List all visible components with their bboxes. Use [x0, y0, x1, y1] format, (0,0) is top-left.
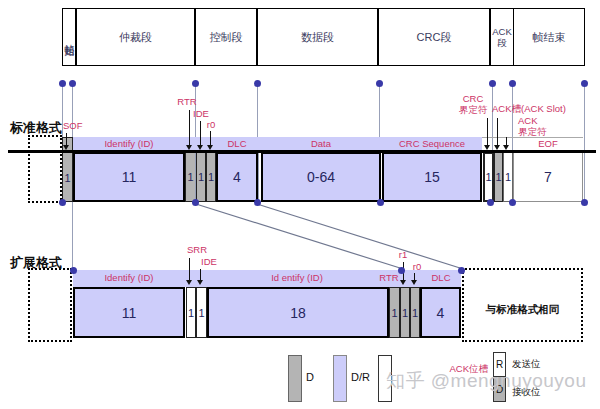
- extended-r0-bit-box: 1: [410, 287, 420, 338]
- watermark: 知乎 @mengnuyouyou: [386, 368, 587, 394]
- legend-dominant-recessive-swatch: [333, 355, 347, 402]
- standard-id-box: 11: [73, 152, 185, 202]
- segment-ack: ACK段: [490, 8, 514, 66]
- extended-rtr-bit-box: 1: [389, 287, 400, 338]
- standard-dlc-header: DLC: [217, 139, 257, 150]
- segment-data: 数据段: [257, 8, 378, 66]
- extended-id2-header: Id entify (ID): [247, 273, 347, 284]
- ack-delimiter-label-line1: ACK: [518, 115, 538, 126]
- connector-dot: [70, 267, 77, 274]
- ack-slot-box: 1: [494, 152, 503, 202]
- ack-slot-label: ACK槽(ACK Slot): [492, 104, 566, 115]
- legend-dominant-recessive-label: D/R: [351, 371, 370, 383]
- ack-delimiter-arrow: [503, 137, 510, 150]
- connector-dot: [581, 199, 588, 206]
- srr-bit-box: 1: [186, 287, 196, 338]
- crc-delimiter-label: CRC界定符: [448, 94, 498, 115]
- eof-box: 7: [513, 152, 583, 202]
- sof-arrow: [63, 133, 70, 150]
- r1-bit-box: 1: [400, 287, 410, 338]
- connector-line: [258, 152, 259, 202]
- extended-dlc-box: 4: [420, 287, 461, 338]
- ack-slot-arrow: [494, 118, 501, 150]
- segment-frame-end: 帧结束: [513, 8, 585, 66]
- extended-leading-dashed-box: [28, 268, 72, 342]
- legend-dominant-label: D: [306, 371, 314, 383]
- segment-crc: CRC段: [378, 8, 490, 66]
- extended-id2-box: 18: [207, 287, 389, 338]
- can-frame-diagram: 帧起始 仲裁段 控制段 数据段 CRC段 ACK段 帧结束 标准格式 Ident…: [0, 0, 600, 409]
- extended-ide-arrow: [197, 269, 204, 285]
- srr-label: SRR: [179, 245, 215, 256]
- connector-dot: [59, 199, 66, 206]
- standard-data-box: 0-64: [261, 152, 381, 202]
- connector-dot: [509, 199, 516, 206]
- segment-arbitration: 仲裁段: [76, 8, 195, 66]
- connector-dot: [192, 199, 199, 206]
- connector-dot: [377, 199, 384, 206]
- connector-dot: [254, 80, 261, 87]
- standard-leading-dashed-box: [28, 135, 62, 203]
- extended-ide-bit-box: 1: [196, 287, 207, 338]
- r0-bit-box: 1: [206, 152, 216, 202]
- r1-label: r1: [385, 250, 421, 261]
- crc-delimiter-box: 1: [483, 152, 494, 202]
- crc-delimiter-arrow: [484, 118, 491, 150]
- extended-r0-arrow: [411, 273, 418, 285]
- extended-ide-label: IDE: [191, 257, 227, 268]
- extended-id-box: 11: [73, 287, 185, 338]
- sof-label: SOF: [63, 121, 83, 132]
- crc-delimiter-label-line2: 界定符: [459, 104, 488, 115]
- connector-dot: [489, 80, 496, 87]
- ack-delimiter-label-line2: 界定符: [518, 126, 547, 137]
- ack-delimiter-label: ACK界定符: [518, 116, 547, 137]
- segment-frame-start: 帧起始: [62, 8, 76, 66]
- connector-dot: [458, 267, 465, 274]
- standard-crc-box: 15: [382, 152, 482, 202]
- extended-format-label: 扩展格式: [10, 254, 62, 272]
- bus-baseline: [8, 150, 596, 153]
- ide-arrow: [197, 121, 204, 150]
- connector-dot: [376, 80, 383, 87]
- standard-dlc-box: 4: [216, 152, 258, 202]
- connector-dot: [398, 267, 405, 274]
- srr-arrow: [186, 258, 193, 285]
- connector-dot: [254, 199, 261, 206]
- connector-line: [584, 86, 585, 202]
- standard-crc-header: CRC Sequence: [382, 139, 482, 150]
- ide-bit-box: 1: [196, 152, 206, 202]
- connector-line: [195, 152, 196, 202]
- same-as-standard-text: 与标准格式相同: [486, 303, 560, 317]
- extended-id-header: Identify (ID): [79, 273, 179, 284]
- r0-arrow: [207, 131, 214, 150]
- standard-id-header: Identify (ID): [79, 139, 179, 150]
- ack-delimiter-box: 1: [503, 152, 513, 202]
- segment-frame-start-label: 帧起始: [63, 36, 75, 39]
- standard-eof-header: EOF: [513, 139, 583, 150]
- connector-dot: [509, 80, 516, 87]
- standard-data-header: Data: [271, 139, 371, 150]
- crc-delimiter-label-line1: CRC: [463, 93, 484, 104]
- connector-dot: [59, 80, 66, 87]
- same-as-standard-box: 与标准格式相同: [462, 268, 583, 342]
- connector-dot: [487, 199, 494, 206]
- connector-dot: [581, 80, 588, 87]
- extended-dlc-header: DLC: [421, 273, 461, 284]
- connector-dot: [192, 80, 199, 87]
- rtr-label: RTR: [169, 97, 205, 108]
- connector-dot: [69, 80, 76, 87]
- segment-control: 控制段: [195, 8, 257, 66]
- rtr-arrow: [186, 110, 193, 150]
- standard-format-label: 标准格式: [10, 119, 62, 137]
- legend-dominant-swatch: [288, 355, 302, 402]
